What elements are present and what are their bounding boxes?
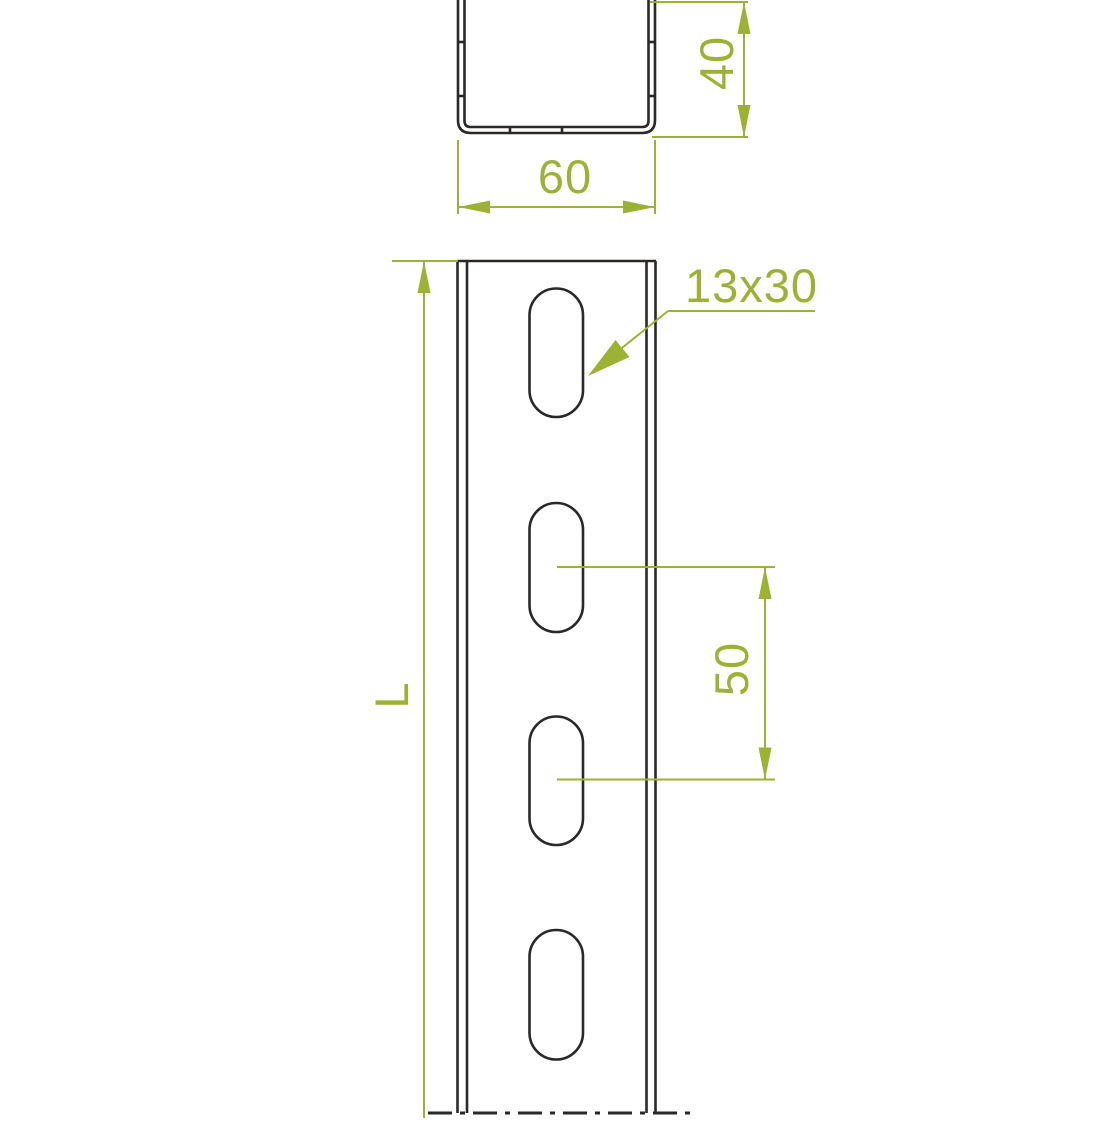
dim-L-label: L [365, 681, 418, 708]
slot-size-label: 13x30 [685, 259, 818, 312]
dim-60-label: 60 [538, 150, 592, 203]
dim-50-label: 50 [705, 642, 758, 696]
dim-40-label: 40 [690, 36, 743, 90]
drawing-canvas: 40 60 L 13x30 50 [0, 0, 1119, 1122]
channel-profile-drawing: 40 60 L 13x30 50 [0, 0, 1119, 1122]
